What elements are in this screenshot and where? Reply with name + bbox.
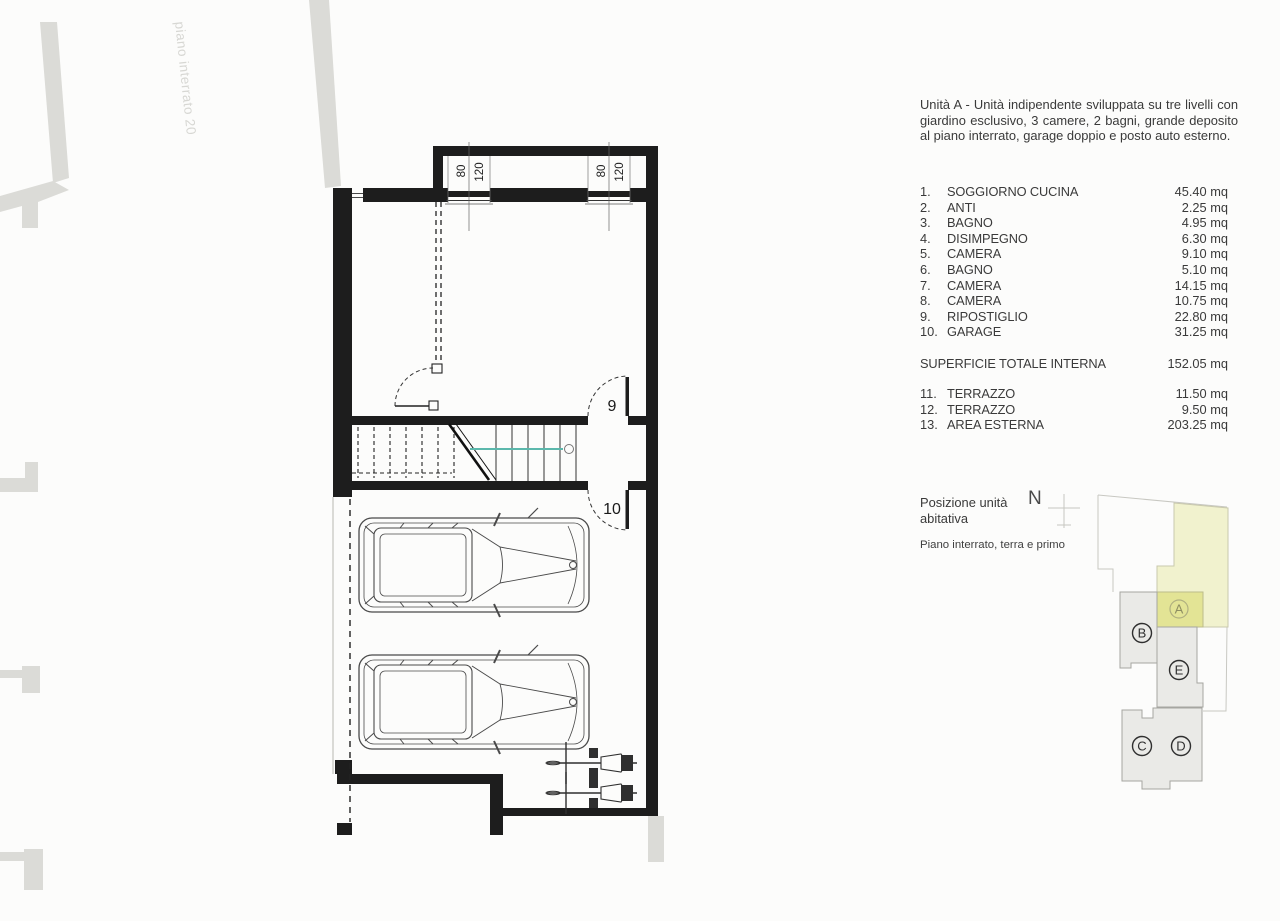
room-number: 4. bbox=[920, 231, 947, 247]
room-number: 8. bbox=[920, 293, 947, 309]
room-name: TERRAZZO bbox=[947, 402, 1182, 418]
window-height-label: 120 bbox=[614, 162, 626, 181]
room-row: 11.TERRAZZO11.50 mq bbox=[920, 386, 1228, 402]
total-area-label: SUPERFICIE TOTALE INTERNA bbox=[920, 356, 1168, 372]
room-number: 5. bbox=[920, 246, 947, 262]
site-minimap: A B E C D bbox=[1098, 495, 1228, 789]
floors-caption: Piano interrato, terra e primo bbox=[920, 539, 1065, 551]
room-number: 7. bbox=[920, 278, 947, 294]
compass-north-label: N bbox=[1028, 488, 1042, 510]
room-name: CAMERA bbox=[947, 246, 1182, 262]
room-area: 203.25 mq bbox=[1168, 417, 1228, 433]
room-name: TERRAZZO bbox=[947, 386, 1176, 402]
room-number: 12. bbox=[920, 402, 947, 418]
unit-c-label: C bbox=[1137, 739, 1146, 754]
wall-shadow bbox=[648, 816, 664, 862]
window-width-label: 80 bbox=[596, 165, 608, 178]
room-number: 10. bbox=[920, 324, 947, 340]
room-name: ANTI bbox=[947, 200, 1182, 216]
room-area: 9.10 mq bbox=[1182, 246, 1228, 262]
room-area: 11.50 mq bbox=[1176, 386, 1228, 402]
room-name: GARAGE bbox=[947, 324, 1175, 340]
position-caption-line2: abitativa bbox=[920, 511, 1007, 527]
upper-floor-projection bbox=[432, 202, 442, 373]
room-area: 22.80 mq bbox=[1175, 309, 1228, 325]
unit-description: Unità A - Unità indipendente sviluppata … bbox=[920, 97, 1238, 144]
room-number: 2. bbox=[920, 200, 947, 216]
room-label-9: 9 bbox=[608, 398, 617, 415]
room-row: 9.RIPOSTIGLIO22.80 mq bbox=[920, 309, 1228, 325]
room-number: 11. bbox=[920, 386, 947, 402]
stair-break-line bbox=[449, 424, 489, 480]
room-row: 13.AREA ESTERNA203.25 mq bbox=[920, 417, 1228, 433]
window-width-label: 80 bbox=[456, 165, 468, 178]
room-row: 8.CAMERA10.75 mq bbox=[920, 293, 1228, 309]
staircase bbox=[352, 424, 576, 481]
room-name: RIPOSTIGLIO bbox=[947, 309, 1175, 325]
position-caption-line1: Posizione unità bbox=[920, 495, 1007, 511]
position-caption: Posizione unità abitativa bbox=[920, 495, 1007, 527]
unit-e-label: E bbox=[1175, 663, 1184, 678]
unit-d-label: D bbox=[1176, 739, 1185, 754]
external-areas-list: 11.TERRAZZO11.50 mq12.TERRAZZO9.50 mq13.… bbox=[920, 386, 1228, 433]
room-row: 2.ANTI2.25 mq bbox=[920, 200, 1228, 216]
bicycle-top-view bbox=[546, 772, 637, 814]
room-row: 1.SOGGIORNO CUCINA45.40 mq bbox=[920, 184, 1228, 200]
room-area: 2.25 mq bbox=[1182, 200, 1228, 216]
room-number: 13. bbox=[920, 417, 947, 433]
unit-b-label: B bbox=[1138, 626, 1147, 641]
room-row: 4.DISIMPEGNO6.30 mq bbox=[920, 231, 1228, 247]
room-list: 1.SOGGIORNO CUCINA45.40 mq2.ANTI2.25 mq3… bbox=[920, 184, 1228, 340]
room-name: BAGNO bbox=[947, 262, 1182, 278]
room-area: 5.10 mq bbox=[1182, 262, 1228, 278]
room-label-10: 10 bbox=[603, 501, 621, 518]
room-name: BAGNO bbox=[947, 215, 1182, 231]
room-row: 5.CAMERA9.10 mq bbox=[920, 246, 1228, 262]
room-row: 7.CAMERA14.15 mq bbox=[920, 278, 1228, 294]
room-number: 9. bbox=[920, 309, 947, 325]
floorplan-sheet: piano interrato 20 bbox=[0, 0, 1280, 921]
total-area-row: SUPERFICIE TOTALE INTERNA 152.05 mq bbox=[920, 356, 1228, 372]
room-number: 3. bbox=[920, 215, 947, 231]
interior-door bbox=[395, 368, 438, 410]
room-row: 12.TERRAZZO9.50 mq bbox=[920, 402, 1228, 418]
room-area: 9.50 mq bbox=[1182, 402, 1228, 418]
car-top-view bbox=[359, 508, 589, 617]
room-row: 3.BAGNO4.95 mq bbox=[920, 215, 1228, 231]
unit-a-label: A bbox=[1175, 602, 1184, 617]
vent-window bbox=[352, 188, 363, 202]
room-row: 10.GARAGE31.25 mq bbox=[920, 324, 1228, 340]
room-name: CAMERA bbox=[947, 293, 1175, 309]
total-area-value: 152.05 mq bbox=[1168, 356, 1228, 372]
room-area: 6.30 mq bbox=[1182, 231, 1228, 247]
background-fragments bbox=[0, 0, 664, 890]
room-name: DISIMPEGNO bbox=[947, 231, 1182, 247]
car-top-view bbox=[359, 645, 589, 754]
room-number: 6. bbox=[920, 262, 947, 278]
watermark-text: piano interrato 20 bbox=[172, 21, 199, 136]
room-name: AREA ESTERNA bbox=[947, 417, 1168, 433]
room-row: 6.BAGNO5.10 mq bbox=[920, 262, 1228, 278]
room-name: CAMERA bbox=[947, 278, 1175, 294]
room-area: 10.75 mq bbox=[1175, 293, 1228, 309]
room-name: SOGGIORNO CUCINA bbox=[947, 184, 1175, 200]
room-area: 31.25 mq bbox=[1175, 324, 1228, 340]
room-area: 45.40 mq bbox=[1175, 184, 1228, 200]
compass-cross bbox=[1048, 494, 1080, 528]
window-height-label: 120 bbox=[474, 162, 486, 181]
room-area: 4.95 mq bbox=[1182, 215, 1228, 231]
room-number: 1. bbox=[920, 184, 947, 200]
room-area: 14.15 mq bbox=[1175, 278, 1228, 294]
